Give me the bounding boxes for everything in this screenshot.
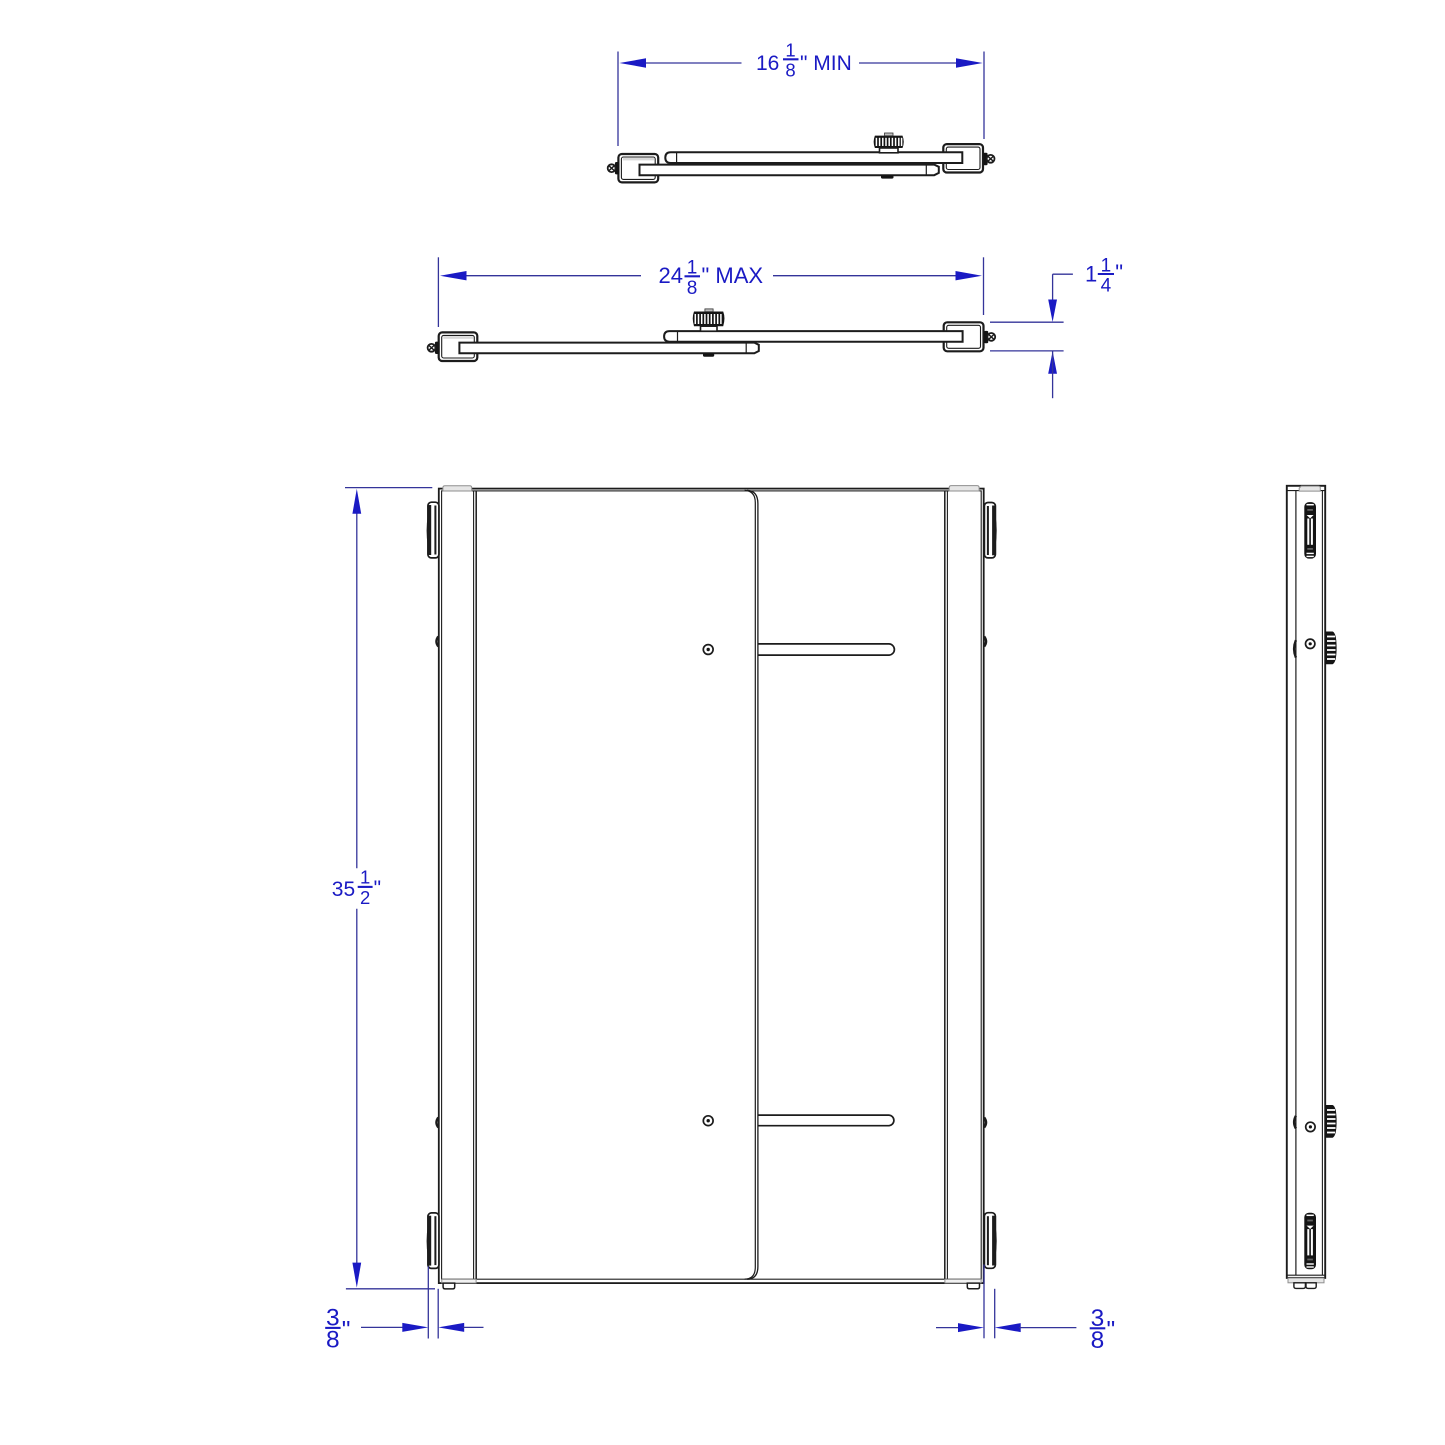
svg-text:1: 1 — [360, 866, 370, 887]
svg-text:" MAX: " MAX — [702, 263, 764, 288]
svg-text:4: 4 — [1101, 276, 1112, 297]
svg-text:8: 8 — [1091, 1327, 1105, 1354]
svg-text:": " — [342, 1316, 351, 1343]
svg-text:35: 35 — [332, 878, 355, 901]
svg-text:8: 8 — [687, 278, 698, 299]
svg-text:" MIN: " MIN — [800, 52, 852, 75]
svg-text:": " — [374, 877, 381, 900]
svg-text:1: 1 — [785, 40, 795, 61]
svg-text:2: 2 — [360, 887, 370, 908]
svg-text:": " — [1107, 1317, 1116, 1344]
svg-text:1: 1 — [1085, 262, 1097, 287]
svg-text:24: 24 — [659, 263, 683, 288]
svg-text:8: 8 — [785, 60, 795, 81]
svg-text:": " — [1115, 260, 1123, 285]
svg-text:16: 16 — [756, 52, 779, 75]
svg-text:8: 8 — [326, 1326, 340, 1353]
